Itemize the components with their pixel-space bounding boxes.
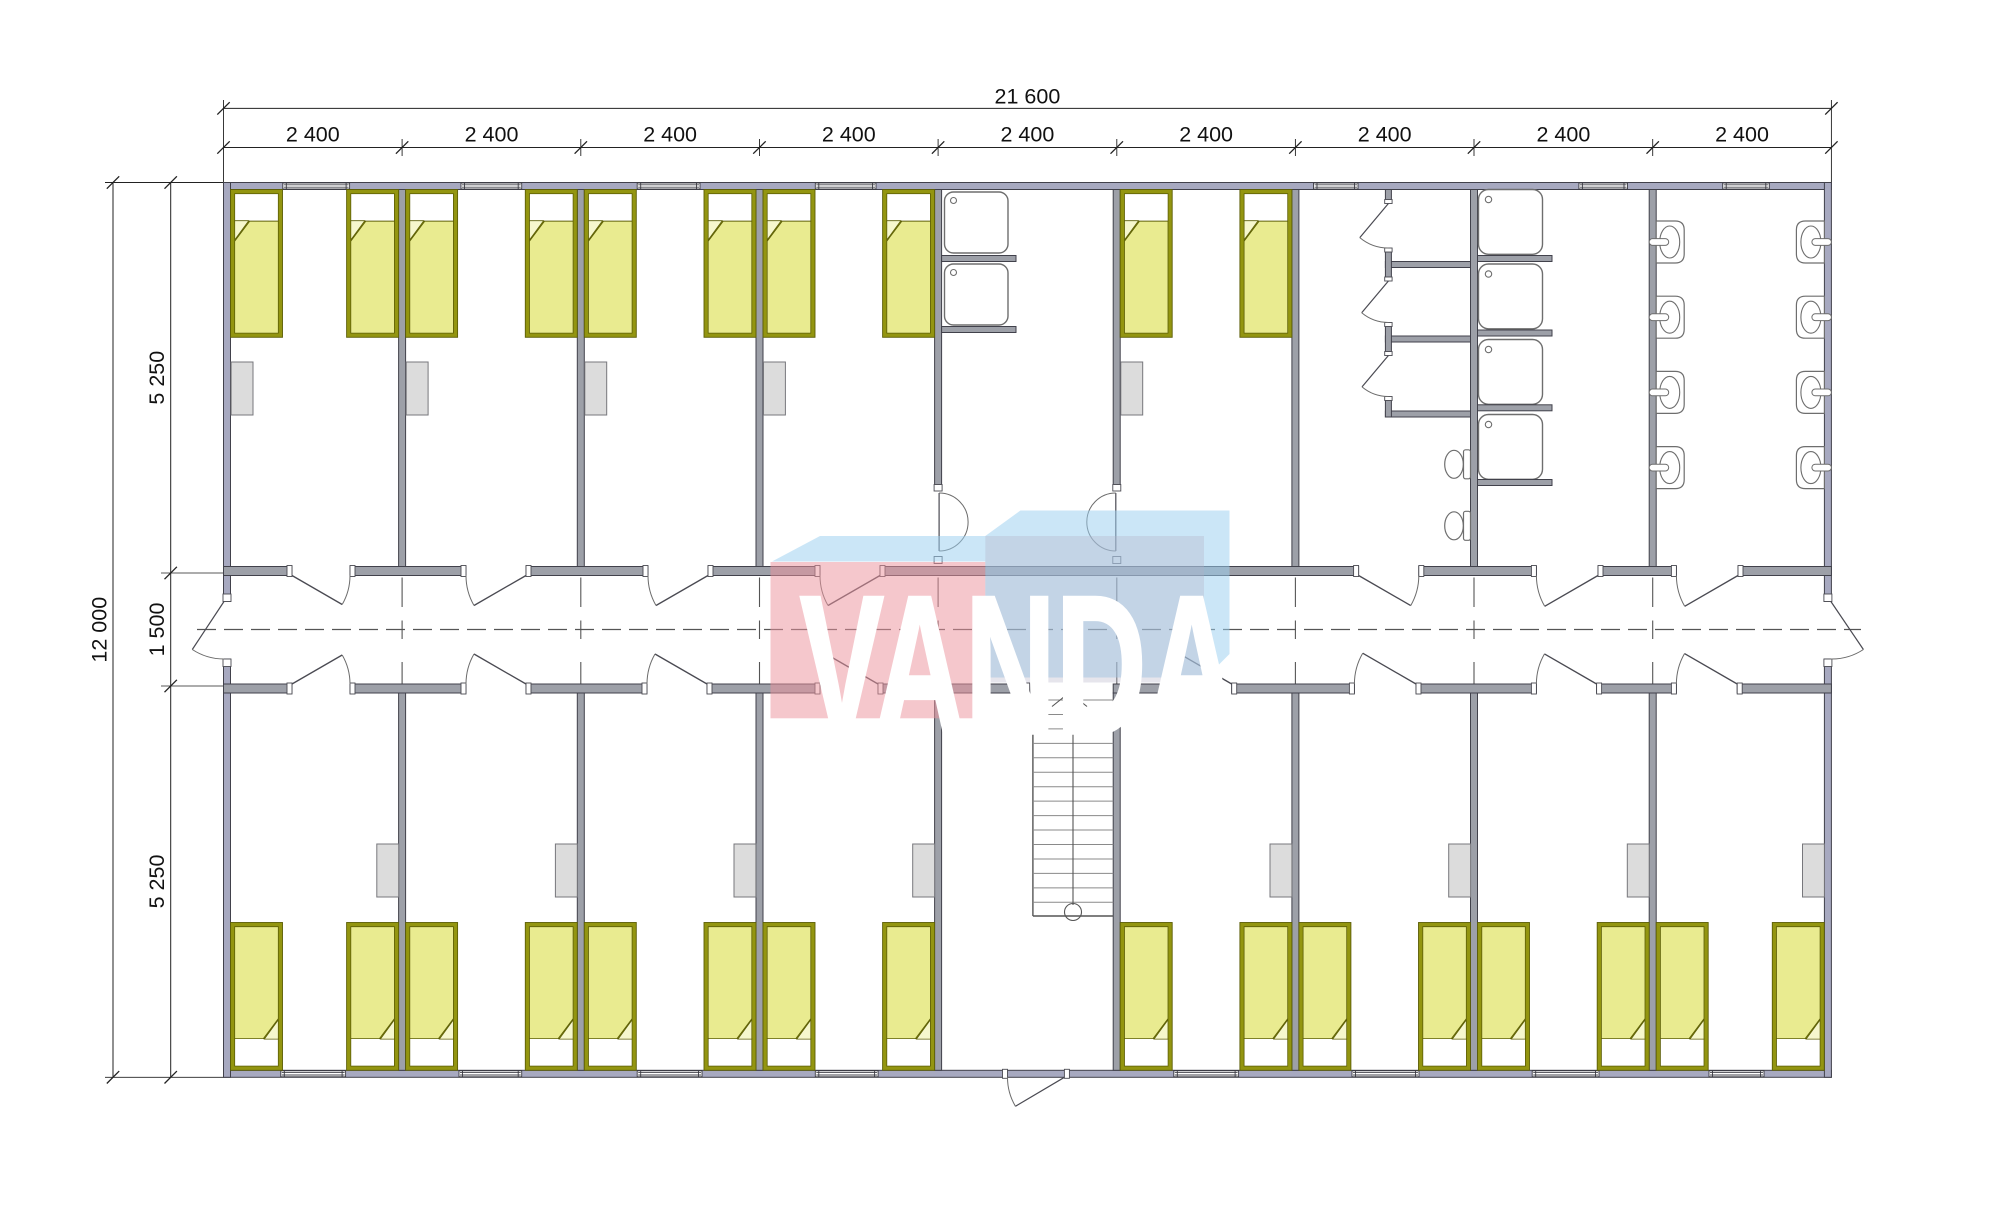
svg-text:2 400: 2 400	[286, 123, 340, 147]
svg-text:5 250: 5 250	[145, 351, 169, 405]
svg-text:12 000: 12 000	[88, 597, 112, 663]
svg-text:2 400: 2 400	[643, 123, 697, 147]
svg-text:2 400: 2 400	[1179, 123, 1233, 147]
svg-text:2 400: 2 400	[465, 123, 519, 147]
svg-text:VANDA: VANDA	[800, 555, 1237, 775]
svg-text:2 400: 2 400	[1715, 123, 1769, 147]
svg-text:2 400: 2 400	[1536, 123, 1590, 147]
svg-text:5 250: 5 250	[145, 855, 169, 909]
svg-text:2 400: 2 400	[822, 123, 876, 147]
svg-text:2 400: 2 400	[1000, 123, 1054, 147]
svg-text:21 600: 21 600	[995, 85, 1061, 109]
svg-text:2 400: 2 400	[1358, 123, 1412, 147]
svg-text:1 500: 1 500	[145, 603, 169, 657]
